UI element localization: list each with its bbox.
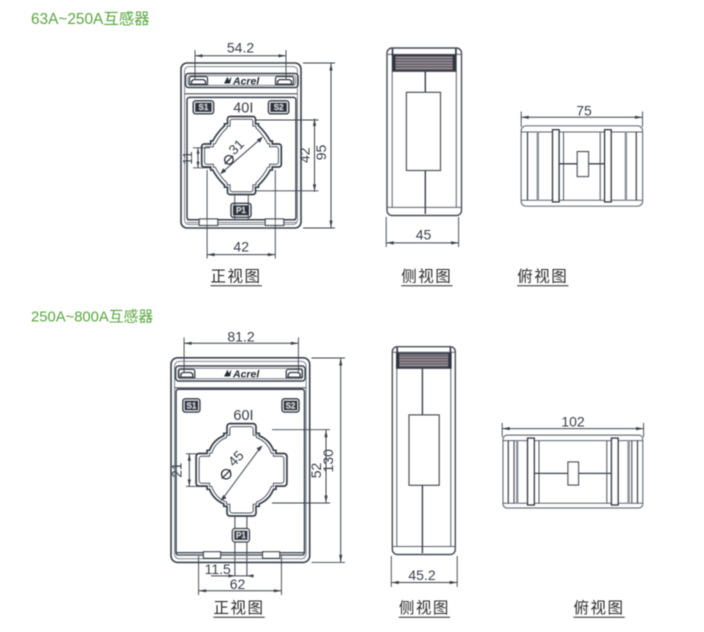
svg-text:45: 45: [225, 447, 247, 469]
svg-text:P1: P1: [236, 206, 246, 215]
svg-text:正视图: 正视图: [210, 268, 261, 286]
svg-text:正视图: 正视图: [213, 599, 264, 617]
svg-text:S2: S2: [286, 401, 296, 410]
svg-text:54.2: 54.2: [227, 40, 254, 56]
svg-text:250A~800A互感器: 250A~800A互感器: [31, 309, 153, 326]
svg-text:P1: P1: [236, 531, 246, 540]
svg-text:S1: S1: [199, 103, 209, 112]
svg-text:42: 42: [297, 147, 313, 163]
svg-text:81.2: 81.2: [227, 328, 254, 344]
svg-text:21: 21: [169, 463, 184, 478]
svg-text:62: 62: [230, 576, 246, 592]
svg-text:Acrel: Acrel: [232, 368, 260, 380]
svg-text:60I: 60I: [233, 408, 253, 424]
svg-text:130: 130: [320, 449, 336, 473]
svg-text:102: 102: [561, 413, 585, 429]
svg-text:S2: S2: [274, 103, 284, 112]
svg-text:75: 75: [576, 102, 592, 118]
svg-text:45.2: 45.2: [408, 567, 435, 583]
svg-text:俯视图: 俯视图: [517, 268, 568, 286]
svg-text:11.5: 11.5: [205, 561, 231, 577]
svg-text:31: 31: [226, 136, 247, 157]
svg-text:侧视图: 侧视图: [401, 268, 452, 286]
svg-text:95: 95: [313, 145, 329, 161]
svg-text:11: 11: [180, 151, 195, 165]
svg-text:S1: S1: [187, 401, 197, 410]
svg-text:俯视图: 俯视图: [573, 599, 624, 617]
svg-text:45: 45: [416, 227, 432, 243]
svg-text:40I: 40I: [233, 101, 253, 117]
svg-text:Acrel: Acrel: [232, 75, 260, 87]
svg-text:42: 42: [233, 238, 249, 254]
svg-text:63A~250A互感器: 63A~250A互感器: [31, 10, 150, 28]
svg-text:侧视图: 侧视图: [399, 599, 450, 617]
